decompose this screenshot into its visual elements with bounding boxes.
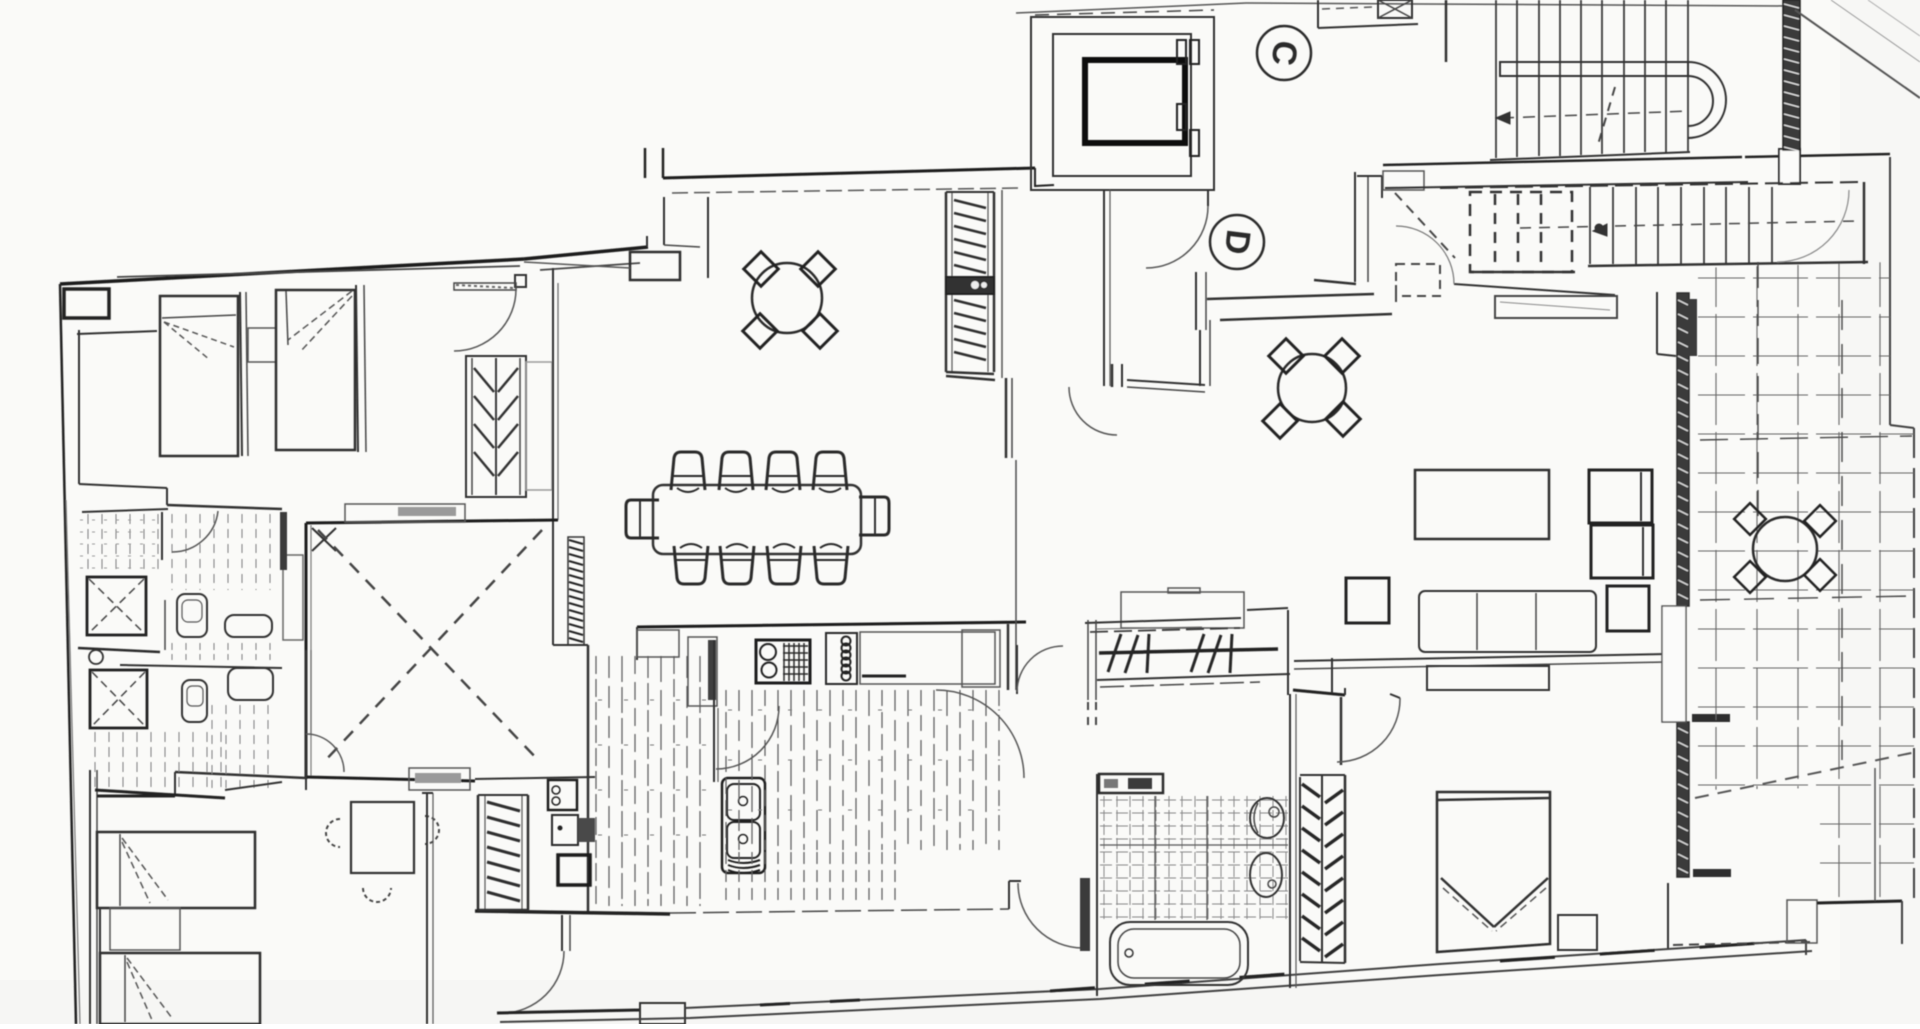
- svg-text:C: C: [1264, 38, 1305, 67]
- svg-text:D: D: [1217, 227, 1258, 256]
